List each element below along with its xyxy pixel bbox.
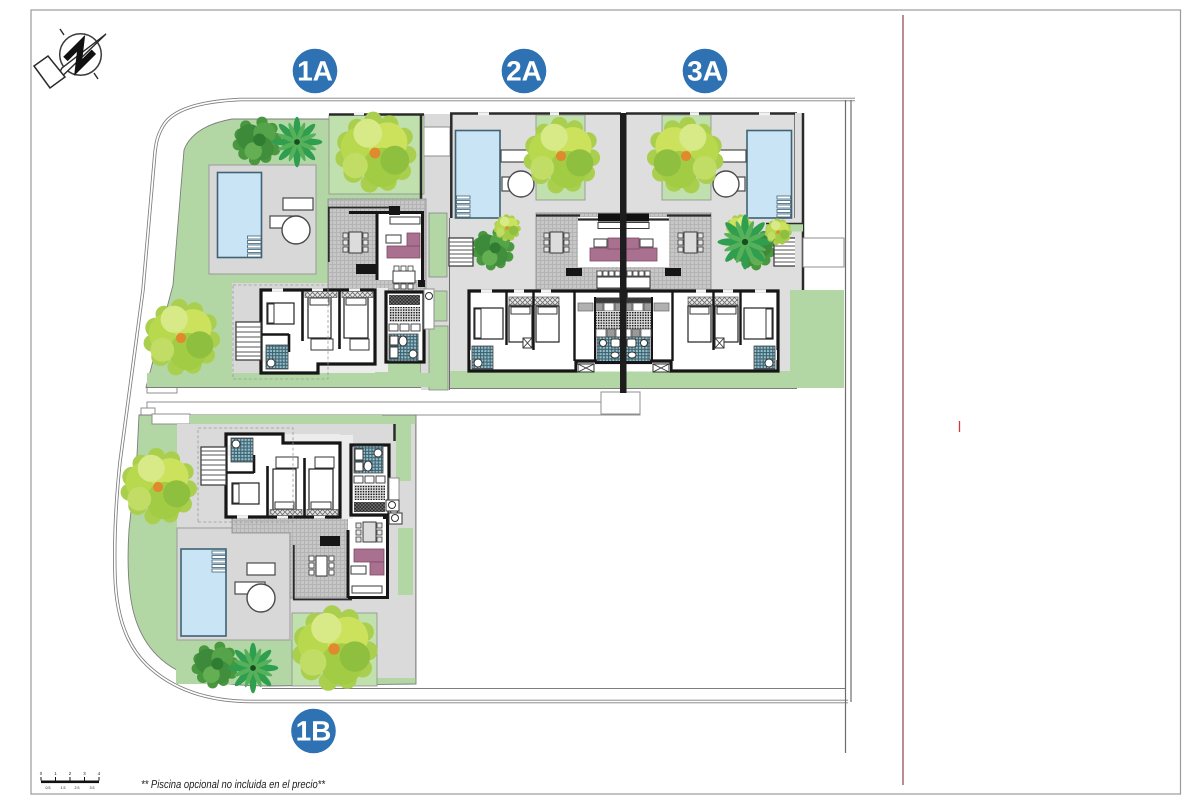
svg-text:2.5: 2.5 [75,786,80,790]
svg-text:3A: 3A [687,56,723,87]
svg-text:** Piscina opcional no incluid: ** Piscina opcional no incluida en el pr… [141,779,325,791]
svg-text:0.5: 0.5 [46,786,51,790]
svg-text:3.5: 3.5 [90,786,95,790]
svg-text:1A: 1A [297,56,333,87]
svg-text:2A: 2A [506,56,542,87]
svg-text:1B: 1B [296,716,332,747]
svg-text:1.5: 1.5 [61,786,66,790]
